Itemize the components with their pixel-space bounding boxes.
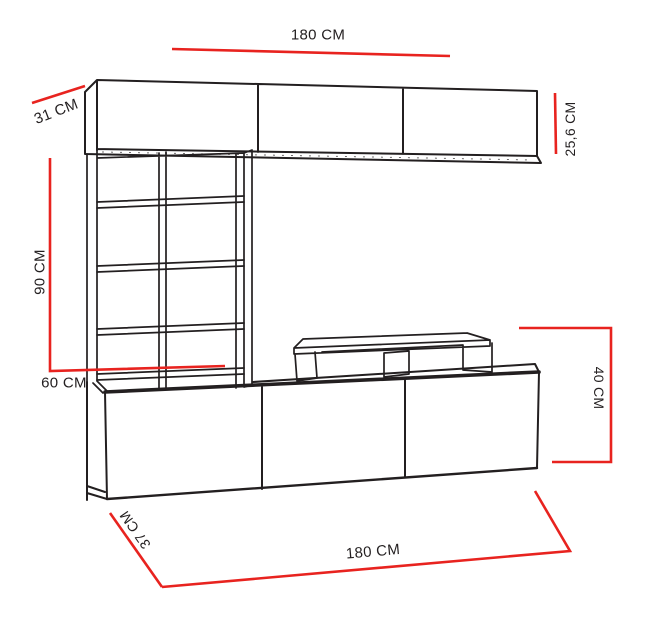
tv-stand-bottom-edge bbox=[107, 468, 537, 499]
tv-stand-top-edge bbox=[105, 372, 539, 392]
shelf-column-shelves bbox=[97, 196, 244, 380]
dimension-lines bbox=[32, 49, 611, 587]
upper-cabinet-outline bbox=[85, 80, 541, 163]
dim-base-cabinet-height-label: 40 CM bbox=[591, 367, 607, 410]
dimension-labels: 180 CM 31 CM 25,6 CM 90 CM 60 CM 40 CM 3… bbox=[31, 26, 607, 562]
dim-shelf-column-height-label: 90 CM bbox=[31, 249, 48, 295]
dim-top-width-line bbox=[172, 49, 450, 56]
dim-bottom-width-label: 180 CM bbox=[345, 541, 401, 563]
dim-upper-cabinet-height-line bbox=[555, 93, 556, 154]
tv-stand-body bbox=[87, 364, 539, 500]
wall-unit-technical-diagram: 180 CM 31 CM 25,6 CM 90 CM 60 CM 40 CM 3… bbox=[0, 0, 645, 619]
dim-top-width-label: 180 CM bbox=[291, 26, 345, 43]
dim-shelf-column-width-label: 60 CM bbox=[41, 374, 87, 391]
drawing-page: 180 CM 31 CM 25,6 CM 90 CM 60 CM 40 CM 3… bbox=[0, 0, 645, 619]
dim-top-depth-line bbox=[32, 86, 85, 103]
furniture-drawing bbox=[85, 80, 541, 500]
dim-bottom-width-line bbox=[162, 491, 570, 587]
dim-upper-cabinet-height-label: 25,6 CM bbox=[562, 101, 578, 156]
